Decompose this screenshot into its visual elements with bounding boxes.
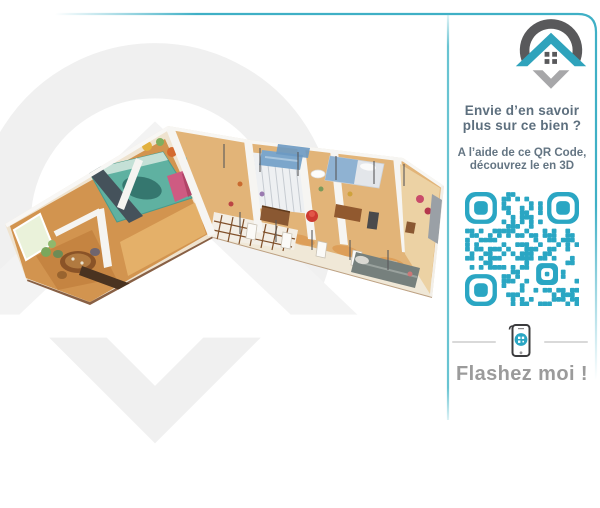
brand-logo (511, 15, 591, 100)
subtext-line2: découvrez le en 3D (448, 160, 596, 173)
divider-right (544, 341, 588, 343)
headline-line1: Envie d’en savoir (448, 103, 596, 118)
panel-headline: Envie d’en savoir plus sur ce bien ? (448, 103, 596, 133)
dollhouse-3d-view (0, 94, 450, 326)
headline-line2: plus sur ce bien ? (448, 118, 596, 133)
cta-text: Flashez moi ! (448, 363, 596, 386)
map-pin-house-icon (511, 15, 591, 100)
subtext-line1: A l’aide de ce QR Code, (448, 147, 596, 160)
smartphone-scan-icon (506, 323, 536, 359)
divider-left (452, 341, 496, 343)
panel-subtext: A l’aide de ce QR Code, découvrez le en … (448, 147, 596, 173)
qr-code (465, 192, 579, 306)
flyer-page: { "brand": { "logo_icon": "map-pin-house… (0, 0, 600, 425)
